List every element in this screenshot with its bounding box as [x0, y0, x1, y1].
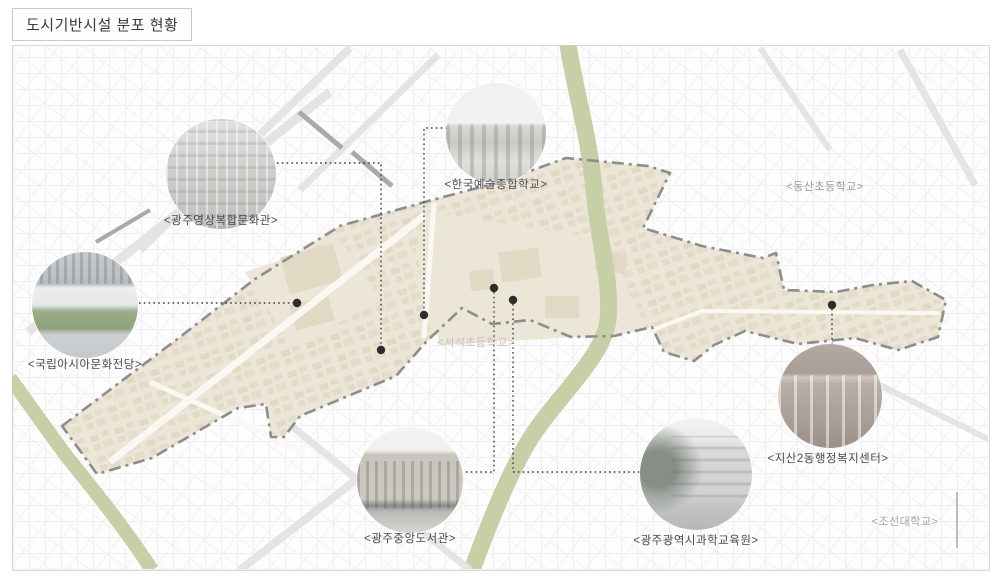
- page: <광주영상복합문화관> <한국예술종합학교> <국립아시아문화전당> <광주중앙…: [0, 0, 1000, 585]
- page-title: 도시기반시설 분포 현황: [26, 17, 178, 34]
- facility-label-korea-national-univ-arts: <한국예술종합학교>: [444, 176, 547, 192]
- marker-dot-acc: [293, 299, 301, 307]
- facility-photo-jisan2-dong-welfare-center: [778, 344, 882, 448]
- map-label-dongsan-elementary: <동산초등학교>: [786, 178, 864, 194]
- facility-photo-korea-national-univ-arts: [446, 83, 546, 183]
- facility-label-jisan2-dong-welfare-center: <지산2동행정복지센터>: [767, 450, 888, 466]
- facility-photo-asia-culture-center: [32, 252, 138, 358]
- map-label-chosun-university: <조선대학교>: [872, 513, 939, 529]
- marker-dot-jisan: [828, 301, 836, 309]
- facility-label-gwangju-media-art-center: <광주영상복합문화관>: [164, 212, 278, 228]
- title-box: 도시기반시설 분포 현황: [12, 8, 192, 41]
- facility-label-gwangju-science-institute: <광주광역시과학교육원>: [633, 532, 758, 548]
- marker-dot-science: [509, 296, 517, 304]
- facility-label-gwangju-central-library: <광주중앙도서관>: [364, 530, 456, 546]
- marker-dot-media: [377, 346, 385, 354]
- marker-dot-library: [490, 284, 498, 292]
- facility-photo-gwangju-science-institute: [640, 418, 752, 530]
- marker-dot-arts: [420, 311, 428, 319]
- facility-photo-gwangju-central-library: [357, 427, 463, 533]
- facility-label-asia-culture-center: <국립아시아문화전당>: [28, 356, 142, 372]
- map-label-seoseok-elementary: <서석초등학교>: [437, 334, 515, 350]
